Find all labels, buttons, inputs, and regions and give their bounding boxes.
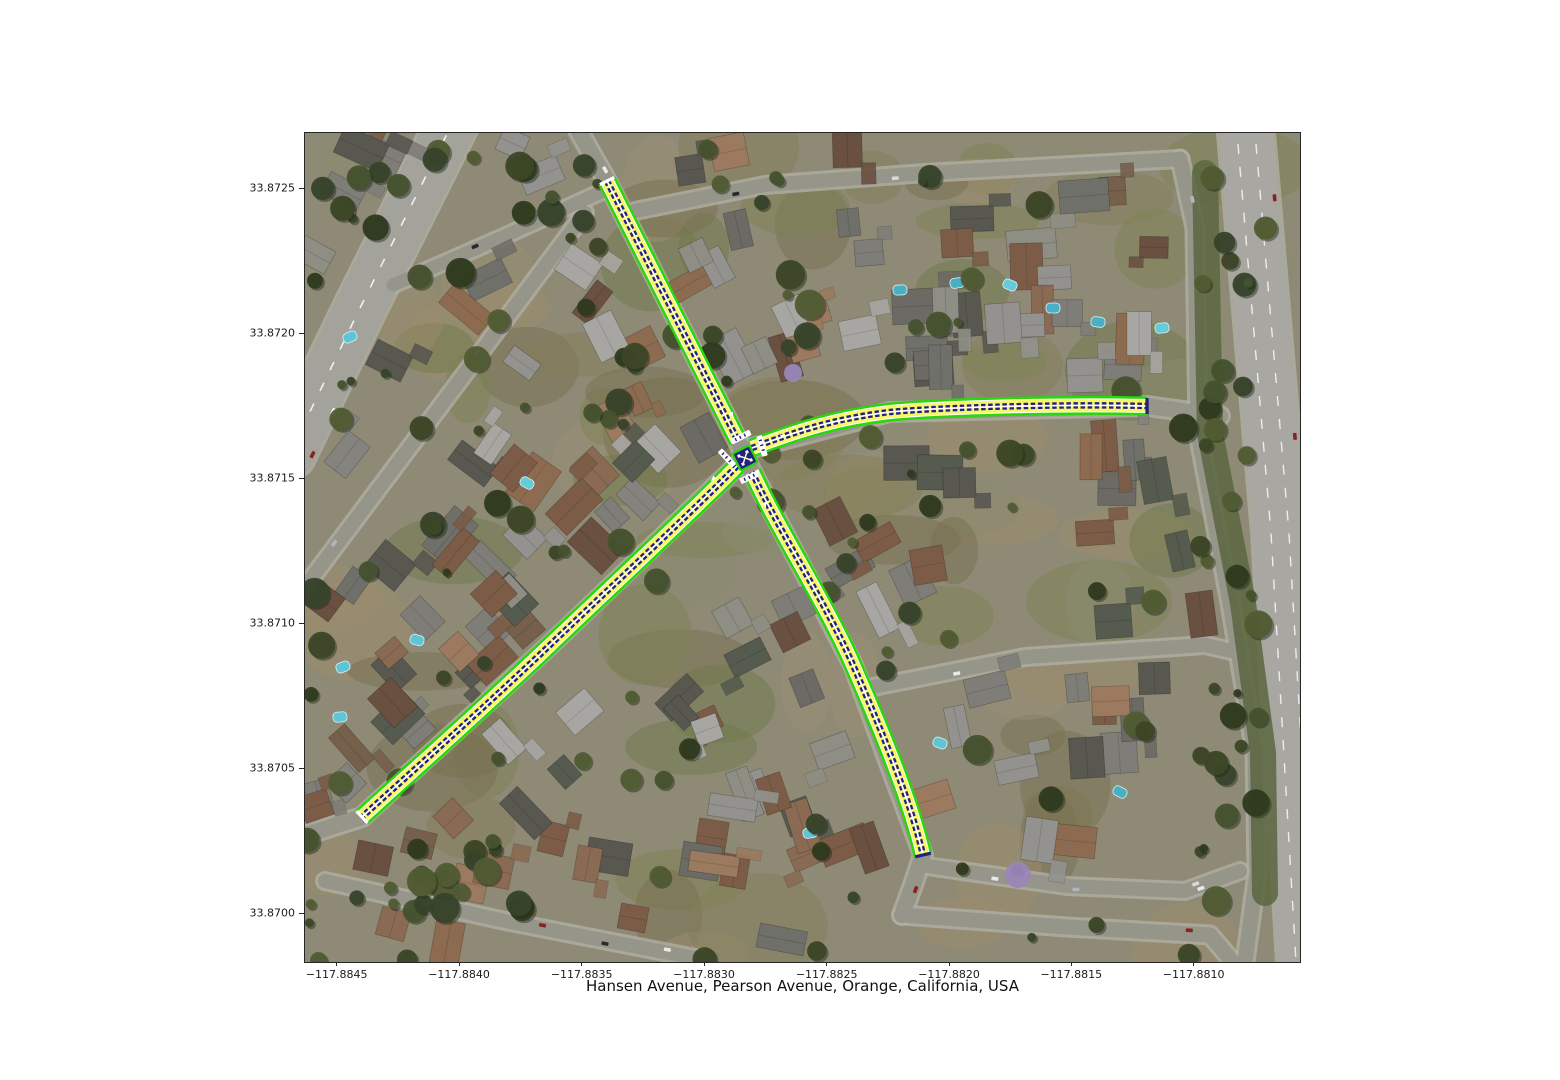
x-tick-mark	[581, 962, 582, 966]
y-tick-mark	[299, 188, 304, 189]
x-tick-mark	[1071, 962, 1072, 966]
y-tick-label: 33.8700	[195, 907, 295, 920]
x-tick-mark	[336, 962, 337, 966]
y-tick-mark	[299, 623, 304, 624]
y-tick-label: 33.8715	[195, 472, 295, 485]
x-tick-mark	[949, 962, 950, 966]
axis-title: Hansen Avenue, Pearson Avenue, Orange, C…	[305, 977, 1300, 995]
y-tick-label: 33.8720	[195, 327, 295, 340]
y-tick-mark	[299, 768, 304, 769]
plot-area	[305, 133, 1300, 962]
figure: −117.8845−117.8840−117.8835−117.8830−117…	[0, 0, 1560, 1080]
road-overlay	[305, 133, 1300, 962]
y-tick-label: 33.8710	[195, 617, 295, 630]
y-tick-mark	[299, 913, 304, 914]
x-tick-mark	[1193, 962, 1194, 966]
x-tick-mark	[459, 962, 460, 966]
x-tick-mark	[826, 962, 827, 966]
y-tick-label: 33.8725	[195, 182, 295, 195]
y-tick-mark	[299, 478, 304, 479]
y-tick-mark	[299, 333, 304, 334]
x-tick-mark	[704, 962, 705, 966]
y-tick-label: 33.8705	[195, 762, 295, 775]
